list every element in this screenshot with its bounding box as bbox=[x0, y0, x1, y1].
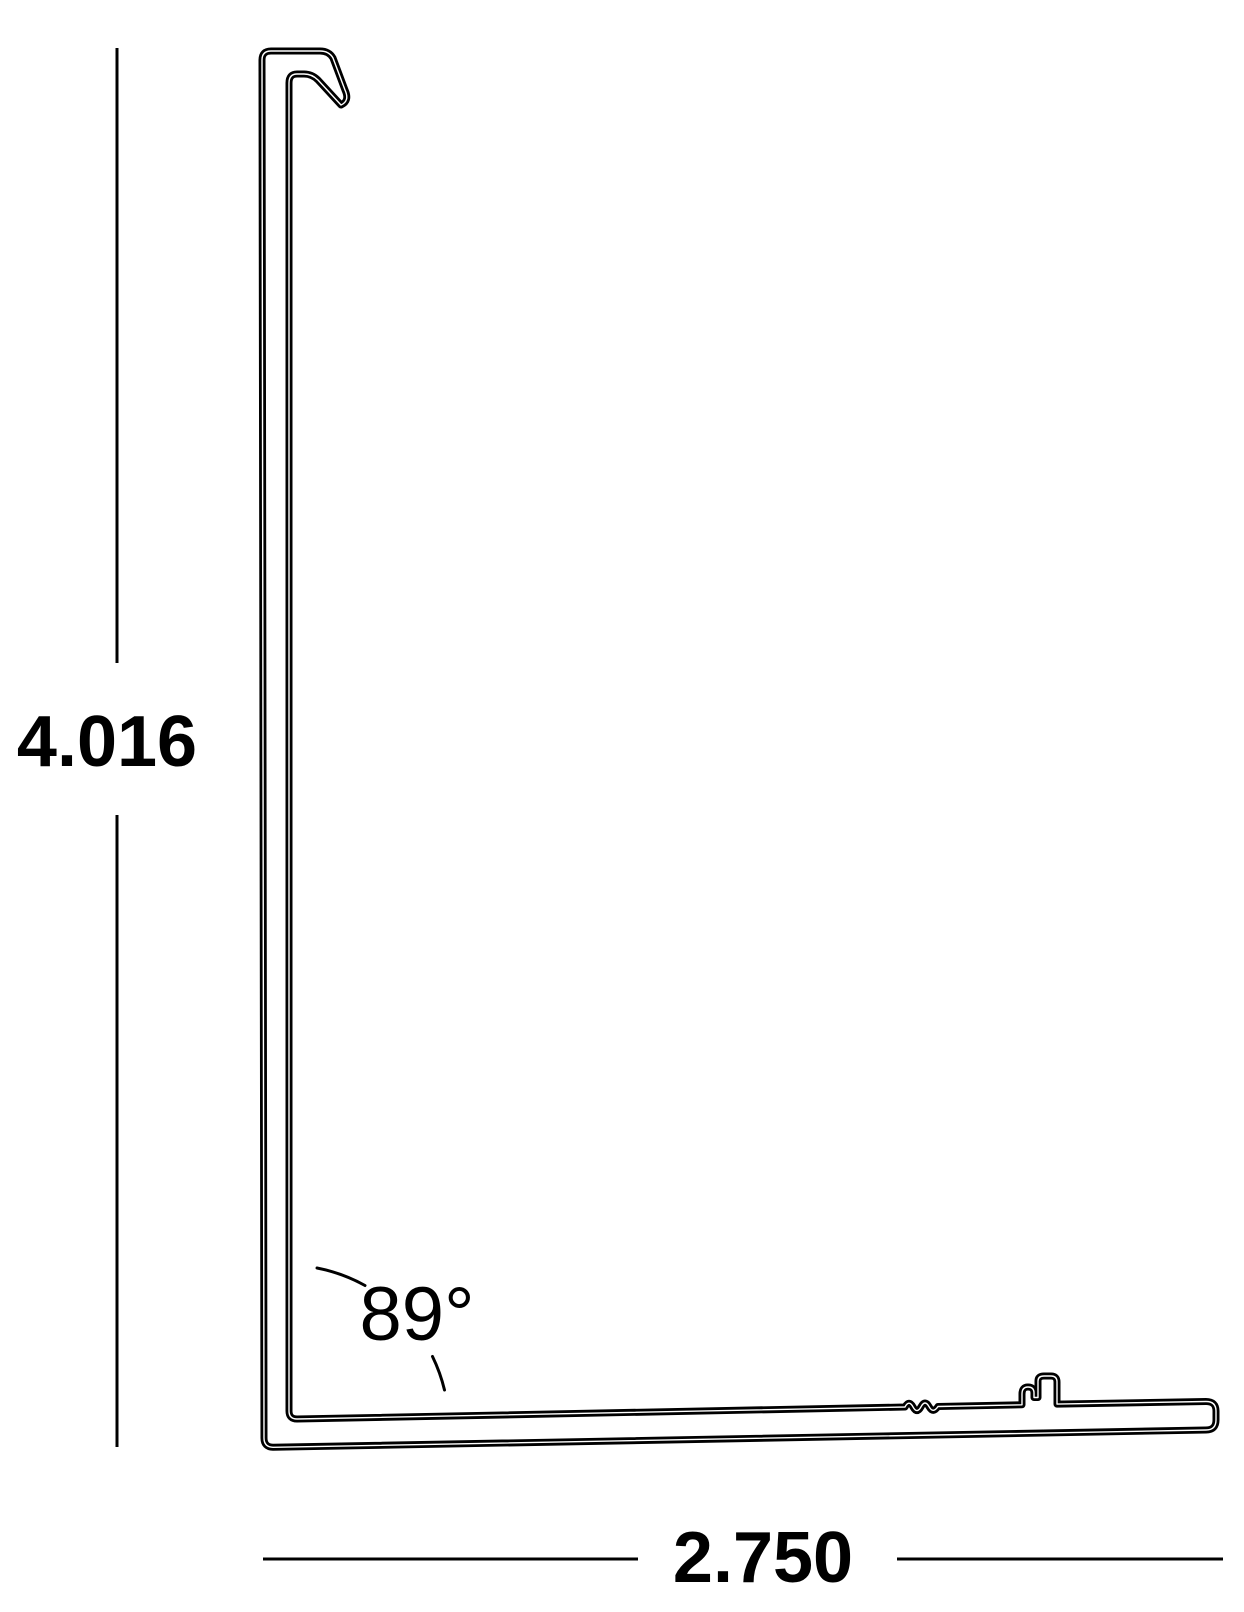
width-dimension-label: 2.750 bbox=[673, 1518, 853, 1598]
technical-drawing: 4.016 2.750 89° bbox=[0, 0, 1244, 1612]
angle-arc-upper bbox=[317, 1268, 365, 1286]
height-dimension-label: 4.016 bbox=[17, 702, 197, 782]
drawing-canvas: 4.016 2.750 89° bbox=[0, 0, 1244, 1612]
angle-arc-lower bbox=[433, 1357, 445, 1391]
angle-dimension-label: 89° bbox=[360, 1272, 475, 1357]
profile-path-core bbox=[262, 51, 1216, 1447]
profile-outline bbox=[262, 51, 1216, 1447]
profile-path bbox=[262, 51, 1216, 1447]
